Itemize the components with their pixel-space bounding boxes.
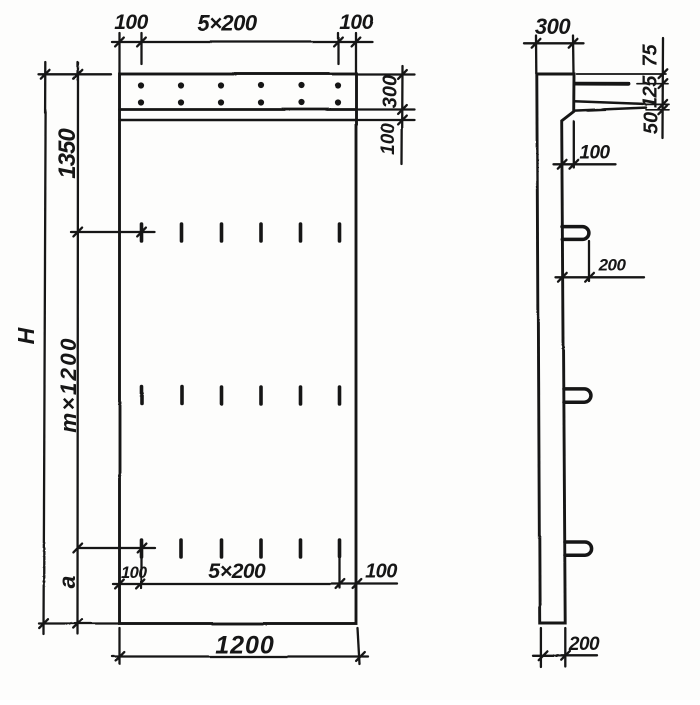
svg-text:100: 100: [114, 11, 148, 34]
svg-text:100: 100: [339, 11, 373, 34]
svg-text:200: 200: [568, 635, 600, 656]
svg-text:125: 125: [640, 75, 662, 108]
svg-text:a: a: [54, 575, 80, 588]
svg-text:100: 100: [378, 123, 399, 155]
svg-text:m×1200: m×1200: [56, 337, 81, 433]
svg-text:5×200: 5×200: [197, 11, 258, 36]
svg-text:1200: 1200: [215, 631, 275, 659]
svg-text:5×200: 5×200: [209, 560, 266, 583]
svg-text:1350: 1350: [54, 128, 81, 179]
svg-text:200: 200: [598, 256, 627, 275]
svg-text:100: 100: [365, 561, 397, 583]
svg-text:50: 50: [641, 112, 663, 134]
svg-text:300: 300: [379, 75, 401, 108]
svg-text:100: 100: [121, 564, 148, 582]
svg-text:75: 75: [640, 44, 662, 67]
svg-text:300: 300: [535, 14, 571, 39]
svg-text:100: 100: [580, 142, 611, 163]
svg-text:H: H: [13, 327, 39, 344]
